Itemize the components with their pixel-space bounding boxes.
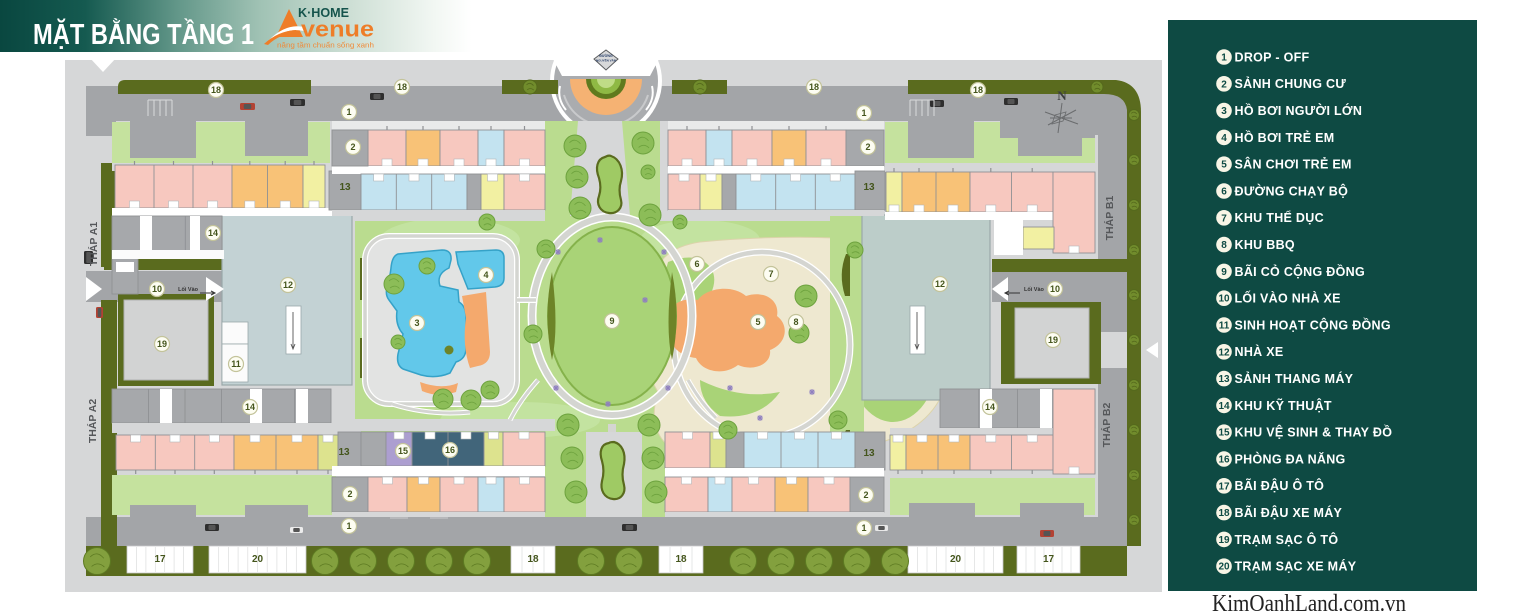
svg-text:KHU THỂ DỤC: KHU THỂ DỤC [1235, 210, 1324, 225]
svg-text:BÃI CỎ CỘNG ĐỒNG: BÃI CỎ CỘNG ĐỒNG [1235, 264, 1366, 279]
svg-text:20: 20 [950, 554, 962, 565]
svg-text:KHU BBQ: KHU BBQ [1235, 238, 1295, 252]
svg-text:18: 18 [973, 85, 983, 95]
svg-text:THÁP B2: THÁP B2 [1100, 402, 1113, 447]
svg-text:18: 18 [527, 554, 539, 565]
svg-text:BÃI ĐẬU Ô TÔ: BÃI ĐẬU Ô TÔ [1235, 478, 1325, 493]
svg-text:LỐI VÀO NHÀ XE: LỐI VÀO NHÀ XE [1235, 291, 1341, 306]
svg-text:1: 1 [346, 107, 351, 117]
svg-text:18: 18 [1218, 508, 1230, 519]
svg-text:7: 7 [1221, 213, 1227, 224]
svg-text:Lối Vào: Lối Vào [178, 286, 199, 293]
svg-text:TRẠM SẠC Ô TÔ: TRẠM SẠC Ô TÔ [1235, 532, 1339, 547]
svg-text:8: 8 [793, 317, 798, 327]
svg-text:12: 12 [1218, 347, 1230, 358]
svg-text:10: 10 [1050, 284, 1060, 294]
svg-text:13: 13 [339, 182, 351, 193]
svg-text:BÃI ĐẬU XE MÁY: BÃI ĐẬU XE MÁY [1235, 505, 1343, 520]
svg-text:2: 2 [347, 489, 352, 499]
svg-text:2: 2 [350, 142, 355, 152]
svg-text:13: 13 [863, 448, 875, 459]
svg-text:20: 20 [252, 554, 264, 565]
svg-text:2: 2 [1221, 79, 1227, 90]
svg-text:ĐƯỜNG: ĐƯỜNG [599, 53, 613, 58]
svg-text:SINH HOẠT CỘNG ĐỒNG: SINH HOẠT CỘNG ĐỒNG [1235, 317, 1391, 332]
svg-text:11: 11 [1219, 321, 1230, 332]
svg-text:nâng tầm chuẩn sống xanh: nâng tầm chuẩn sống xanh [277, 41, 374, 50]
svg-text:19: 19 [1048, 335, 1058, 345]
svg-text:1: 1 [346, 521, 351, 531]
svg-text:13: 13 [338, 447, 350, 458]
svg-text:9: 9 [1221, 267, 1227, 278]
svg-text:MẶT BẰNG TẦNG 1: MẶT BẰNG TẦNG 1 [33, 17, 254, 51]
svg-text:19: 19 [1218, 535, 1230, 546]
svg-text:SẢNH CHUNG CƯ: SẢNH CHUNG CƯ [1235, 76, 1347, 91]
svg-text:14: 14 [1218, 401, 1230, 412]
svg-text:TRẠM SẠC XE MÁY: TRẠM SẠC XE MÁY [1235, 559, 1357, 574]
svg-text:DROP - OFF: DROP - OFF [1235, 50, 1310, 64]
svg-text:1: 1 [861, 108, 866, 118]
svg-text:ĐƯỜNG CHẠY BỘ: ĐƯỜNG CHẠY BỘ [1235, 183, 1349, 198]
svg-text:5: 5 [755, 317, 760, 327]
svg-text:14: 14 [245, 402, 255, 412]
svg-text:3: 3 [414, 318, 419, 328]
svg-text:20: 20 [1218, 562, 1230, 573]
svg-text:THÁP A2: THÁP A2 [86, 399, 99, 444]
svg-text:KHU KỸ THUẬT: KHU KỸ THUẬT [1235, 398, 1332, 413]
svg-text:6: 6 [694, 259, 699, 269]
svg-text:HỒ BƠI NGƯỜI LỚN: HỒ BƠI NGƯỜI LỚN [1235, 103, 1363, 118]
svg-text:1: 1 [1221, 53, 1227, 64]
svg-text:PHÒNG ĐA NĂNG: PHÒNG ĐA NĂNG [1235, 451, 1346, 466]
svg-text:16: 16 [445, 445, 455, 455]
svg-text:SÂN CHƠI TRẺ EM: SÂN CHƠI TRẺ EM [1235, 157, 1352, 172]
svg-text:4: 4 [1221, 133, 1227, 144]
svg-text:THÁP A1: THÁP A1 [87, 222, 100, 267]
svg-text:KimOanhLand.com.vn: KimOanhLand.com.vn [1212, 591, 1406, 614]
svg-text:NHÀ XE: NHÀ XE [1235, 344, 1284, 359]
svg-text:1: 1 [861, 523, 866, 533]
svg-text:11: 11 [231, 359, 241, 369]
svg-text:Lối Vào: Lối Vào [1024, 286, 1045, 293]
svg-text:18: 18 [675, 554, 687, 565]
svg-text:13: 13 [863, 182, 875, 193]
svg-text:2: 2 [865, 142, 870, 152]
svg-text:6: 6 [1221, 187, 1227, 198]
svg-text:17: 17 [1043, 554, 1055, 565]
svg-text:14: 14 [985, 402, 995, 412]
svg-text:18: 18 [809, 82, 819, 92]
svg-text:10: 10 [1218, 294, 1230, 305]
svg-text:N: N [1057, 88, 1067, 103]
svg-text:10: 10 [152, 284, 162, 294]
svg-text:17: 17 [154, 554, 166, 565]
svg-text:13: 13 [1218, 374, 1230, 385]
svg-text:9: 9 [609, 316, 614, 326]
svg-text:18: 18 [397, 82, 407, 92]
svg-text:NGUYỄN VĂN: NGUYỄN VĂN [596, 58, 616, 63]
svg-text:3: 3 [1221, 106, 1227, 117]
svg-text:14: 14 [208, 228, 218, 238]
svg-text:16: 16 [1218, 455, 1230, 466]
svg-text:12: 12 [283, 280, 293, 290]
svg-text:venue: venue [301, 17, 374, 42]
svg-text:THÁP B1: THÁP B1 [1103, 195, 1116, 240]
svg-text:19: 19 [157, 339, 167, 349]
svg-text:15: 15 [398, 446, 408, 456]
svg-text:15: 15 [1218, 428, 1230, 439]
svg-text:HỒ BƠI TRẺ EM: HỒ BƠI TRẺ EM [1235, 130, 1335, 145]
svg-text:KHU VỆ SINH & THAY ĐỒ: KHU VỆ SINH & THAY ĐỒ [1235, 425, 1393, 440]
svg-text:4: 4 [483, 270, 488, 280]
svg-text:18: 18 [211, 85, 221, 95]
svg-text:8: 8 [1221, 240, 1227, 251]
svg-text:2: 2 [863, 490, 868, 500]
svg-text:12: 12 [935, 279, 945, 289]
svg-text:5: 5 [1221, 160, 1227, 171]
svg-text:7: 7 [768, 269, 773, 279]
svg-text:17: 17 [1218, 481, 1230, 492]
svg-text:SẢNH THANG MÁY: SẢNH THANG MÁY [1235, 371, 1354, 386]
